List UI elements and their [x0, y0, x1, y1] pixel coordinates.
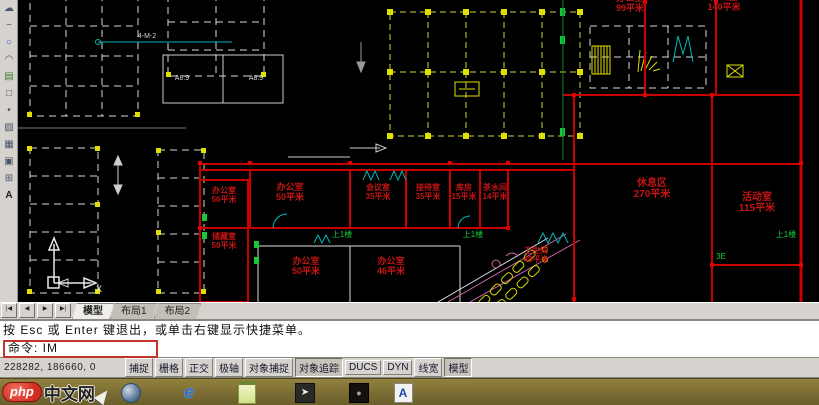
polar-toggle[interactable]: 极轴: [215, 358, 243, 377]
tab-last-button[interactable]: ▶|: [55, 303, 71, 318]
make-block-icon[interactable]: □: [1, 85, 17, 101]
dyn-toggle[interactable]: DYN: [383, 360, 412, 375]
autocad-icon[interactable]: A: [392, 382, 414, 403]
cursor-coordinates: 228282, 186660, 0: [0, 362, 124, 373]
php-chinese-net-watermark: php 中文网: [2, 379, 109, 405]
autocad-window: ☁ ~ ○ ◠ ▤ □ • ▨ ▦ ▣ ⊞ A: [0, 0, 819, 405]
grid-axis-label: 4-M-2: [138, 33, 156, 41]
command-history-line: 按 Esc 或 Enter 键退出，或单击右键显示快捷菜单。: [3, 323, 819, 339]
room-label: 接待室35平米: [416, 183, 441, 201]
ducs-toggle[interactable]: DUCS: [345, 360, 381, 375]
tab-layout1[interactable]: 布局1: [110, 303, 158, 319]
room-tag: A8.9: [249, 75, 263, 83]
corridor-label: 上1楼: [332, 230, 352, 239]
stair-label: 3E: [716, 252, 726, 261]
tab-first-button[interactable]: |◀: [1, 303, 17, 318]
network-globe-icon[interactable]: [120, 382, 142, 403]
ucs-x-label: X: [96, 284, 102, 294]
internet-explorer-icon[interactable]: e: [178, 382, 200, 403]
gradient-icon[interactable]: ▦: [1, 136, 17, 152]
room-label: 办公室50平米: [292, 256, 320, 276]
otrack-toggle[interactable]: 对象追踪: [295, 358, 343, 377]
watermark-text: 中文网: [44, 380, 95, 405]
point-icon[interactable]: •: [1, 102, 17, 118]
notepad-icon[interactable]: [236, 382, 258, 403]
watermark-badge: php: [2, 382, 42, 402]
room-label: 卫生间48平米: [524, 246, 549, 264]
command-prompt[interactable]: 命令: IM: [8, 341, 58, 355]
tab-prev-button[interactable]: ◀: [19, 303, 35, 318]
room-label: 办公室56平米: [212, 186, 237, 204]
model-paper-toggle[interactable]: 模型: [444, 358, 472, 377]
status-bar: 228282, 186660, 0 捕捉 栅格 正交 极轴 对象捕捉 对象追踪 …: [0, 358, 819, 378]
room-tag: A8.9: [175, 75, 189, 83]
grid-toggle[interactable]: 栅格: [155, 358, 183, 377]
room-label: 办公室99平米: [616, 0, 644, 13]
region-icon[interactable]: ▣: [1, 153, 17, 169]
ellipse-arc-icon[interactable]: ◠: [1, 51, 17, 67]
spline-icon[interactable]: ~: [1, 17, 17, 33]
room-label: 库房15平米: [452, 183, 477, 201]
tab-model[interactable]: 模型: [72, 303, 114, 319]
room-label: 办公室50平米: [276, 182, 304, 202]
room-label: 休息区270平米: [634, 178, 671, 200]
insert-block-icon[interactable]: ▤: [1, 68, 17, 84]
osnap-toggle[interactable]: 对象捕捉: [245, 358, 293, 377]
room-label: 活动室115平米: [739, 192, 775, 214]
mtext-icon[interactable]: A: [1, 187, 17, 203]
revision-cloud-icon[interactable]: ☁: [1, 0, 17, 16]
tab-next-button[interactable]: ▶: [37, 303, 53, 318]
table-icon[interactable]: ⊞: [1, 170, 17, 186]
room-label: 办公室46平米: [377, 256, 405, 276]
ellipse-icon[interactable]: ○: [1, 34, 17, 50]
lineweight-toggle[interactable]: 线宽: [414, 358, 442, 377]
hatch-icon[interactable]: ▨: [1, 119, 17, 135]
room-label: 会议室35平米: [366, 183, 391, 201]
model-space-canvas[interactable]: 4-M-2 A8.9 A8.9 上1楼 上1楼 上1楼 3E X 办公室50平米…: [18, 0, 819, 302]
layout-tabbar: |◀ ◀ ▶ ▶| 模型 布局1 布局2: [0, 302, 819, 319]
snap-toggle[interactable]: 捕捉: [125, 358, 153, 377]
corridor-label: 上1楼: [463, 230, 483, 239]
room-label: 储藏室50平米: [212, 232, 237, 250]
command-line-panel[interactable]: 按 Esc 或 Enter 键退出，或单击右键显示快捷菜单。 命令: IM: [0, 319, 819, 358]
pointer-tool-icon[interactable]: ➤: [294, 382, 316, 403]
command-prompt-annotation-box[interactable]: 命令: IM: [3, 340, 158, 358]
ortho-toggle[interactable]: 正交: [185, 358, 213, 377]
draw-toolbar: ☁ ~ ○ ◠ ▤ □ • ▨ ▦ ▣ ⊞ A: [0, 0, 18, 302]
tab-layout2[interactable]: 布局2: [154, 303, 202, 319]
corridor-label: 上1楼: [776, 230, 796, 239]
room-label: 办公室140平米: [707, 0, 740, 12]
media-player-icon[interactable]: ●: [348, 382, 370, 403]
room-label: 茶水间14平米: [483, 183, 508, 201]
floorplan-drawing: [18, 0, 819, 302]
